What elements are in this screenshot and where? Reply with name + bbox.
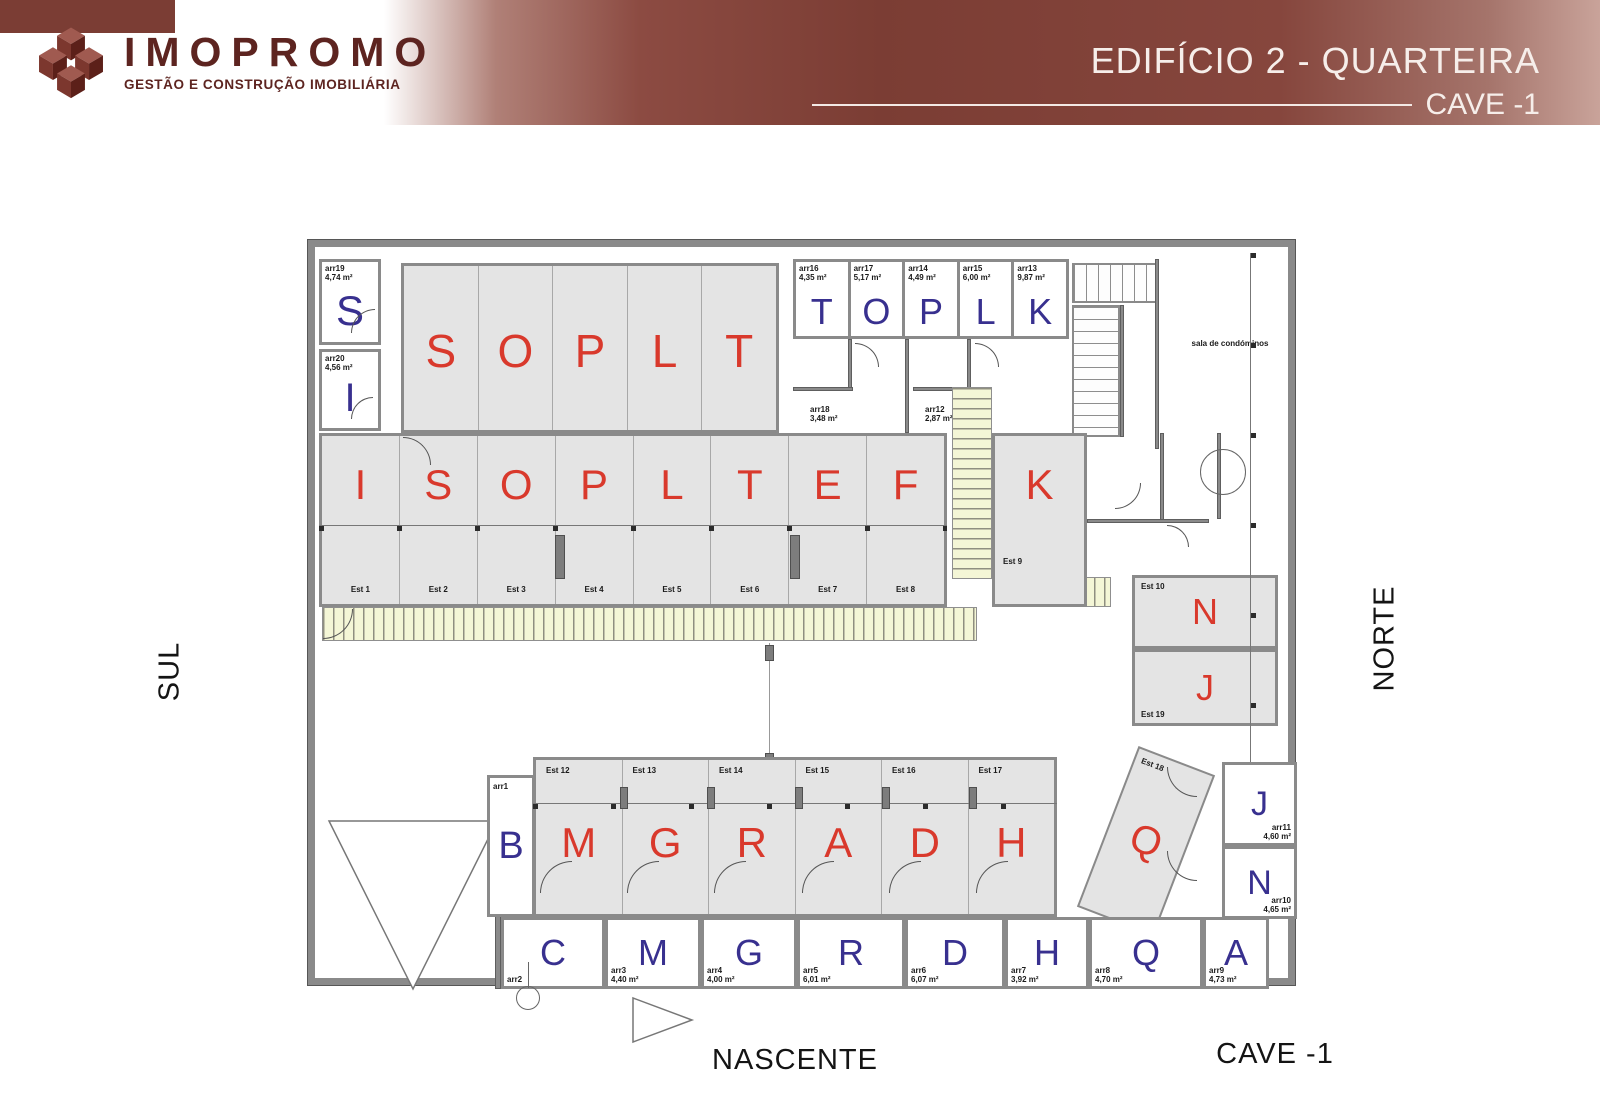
section-marker: [516, 986, 540, 1010]
door-jamb: [795, 787, 803, 809]
parking-space-est8: FEst 8: [867, 436, 944, 604]
wall-segment: [1160, 433, 1164, 521]
wall-segment: [1155, 259, 1159, 449]
orientation-label-nascente: NASCENTE: [665, 1044, 925, 1077]
storage-room-arr1: arr1 B: [487, 775, 535, 917]
title-underline: [812, 104, 1412, 106]
parking-space-est19: J Est 19: [1132, 649, 1278, 726]
door-swing: [855, 343, 879, 367]
room-label-arr18: arr183,48 m²: [810, 405, 838, 423]
storage-room-arr5: arr56,01 m² R: [797, 917, 905, 989]
logo: IMOPROMO GESTÃO E CONSTRUÇÃO IMOBILIÁRIA: [30, 22, 436, 102]
door-jamb: [969, 787, 977, 809]
wc-basin: [1200, 449, 1246, 495]
wall-segment: [1120, 305, 1124, 437]
storage-room-arr17: arr175,17 m² O: [851, 262, 906, 336]
door-swing: [975, 343, 999, 367]
top-parking-band: S O P L T: [401, 263, 779, 433]
parking-space-est7: EEst 7: [789, 436, 867, 604]
wall-segment: [967, 339, 971, 389]
door-swing: [1167, 525, 1189, 547]
column-line: [769, 643, 770, 767]
hatched-walkway: [322, 607, 977, 641]
door-swing: [1115, 483, 1141, 509]
wall-segment: [905, 339, 909, 433]
parking-space-est3: OEst 3: [478, 436, 556, 604]
logo-name: IMOPROMO: [124, 32, 436, 73]
dimension-line: [319, 525, 947, 531]
storage-room-arr8: arr84,70 m² Q: [1089, 917, 1203, 989]
parking-space-p-top: P: [553, 266, 628, 430]
door-jamb: [555, 535, 565, 579]
slide: IMOPROMO GESTÃO E CONSTRUÇÃO IMOBILIÁRIA…: [0, 0, 1600, 1096]
storage-room-arr3: arr34,40 m² M: [605, 917, 701, 989]
storage-room-arr6: arr66,07 m² D: [905, 917, 1005, 989]
section-marker-line: [528, 962, 529, 988]
parking-space-est1: IEst 1: [322, 436, 400, 604]
storage-room-arr11: arr114,60 m² J: [1222, 762, 1297, 846]
parking-space-est10: N Est 10: [1132, 575, 1278, 649]
ramp-triangle: [325, 809, 505, 993]
logo-tagline: GESTÃO E CONSTRUÇÃO IMOBILIÁRIA: [124, 77, 436, 92]
column: [765, 645, 774, 661]
floor-label: CAVE -1: [1180, 1038, 1370, 1071]
door-jamb: [707, 787, 715, 809]
storage-room-arr10: arr104,65 m² N: [1222, 846, 1297, 919]
room-label-arr12: arr122,87 m²: [925, 405, 953, 423]
top-right-rooms-band: arr164,35 m² T arr175,17 m² O arr144,49 …: [793, 259, 1069, 339]
parking-space-est9: K Est 9: [992, 433, 1087, 607]
parking-space-t-top: T: [702, 266, 776, 430]
bottom-parking-band: Est 12M Est 13G Est 14R Est 15A Est 16D …: [533, 757, 1057, 917]
logo-cubes-icon: [30, 22, 112, 102]
door-jamb: [620, 787, 628, 809]
ramp-hatch: [952, 387, 992, 579]
wall-segment: [848, 339, 852, 389]
parking-space-l-top: L: [628, 266, 703, 430]
door-jamb: [790, 535, 800, 579]
stair-flight: [1072, 263, 1158, 303]
parking-space-o-top: O: [479, 266, 554, 430]
condo-room-label: sala de condóminos: [1170, 339, 1290, 348]
storage-room-arr13: arr139,87 m² K: [1014, 262, 1066, 336]
parking-space-est6: TEst 6: [711, 436, 789, 604]
parking-space-s-top: S: [404, 266, 479, 430]
door-jamb: [882, 787, 890, 809]
storage-room-arr15: arr156,00 m² L: [960, 262, 1015, 336]
orientation-label-sul: SUL: [154, 612, 187, 732]
parking-space-est4: PEst 4: [556, 436, 634, 604]
page-title: EDIFÍCIO 2 - QUARTEIRA: [812, 40, 1540, 82]
parking-space-est5: LEst 5: [634, 436, 712, 604]
wall-segment: [1087, 519, 1209, 523]
storage-room-arr16: arr164,35 m² T: [796, 262, 851, 336]
storage-room-arr7: arr73,92 m² H: [1005, 917, 1089, 989]
orientation-label-norte: NORTE: [1369, 559, 1402, 719]
page-subtitle: CAVE -1: [1426, 88, 1540, 122]
header-banner: IMOPROMO GESTÃO E CONSTRUÇÃO IMOBILIÁRIA…: [0, 0, 1600, 125]
floor-plan: arr194,74 m² S arr204,56 m² I S O P L T …: [308, 240, 1295, 985]
storage-room-arr9: arr94,73 m² A: [1203, 917, 1269, 989]
wall-segment: [793, 387, 853, 391]
ramp-arrow-symbol: [630, 995, 700, 1047]
storage-room-arr4: arr44,00 m² G: [701, 917, 797, 989]
storage-room-arr14: arr144,49 m² P: [905, 262, 960, 336]
storage-room-arr2: arr2 C: [501, 917, 605, 989]
stair-flight: [1072, 305, 1120, 437]
